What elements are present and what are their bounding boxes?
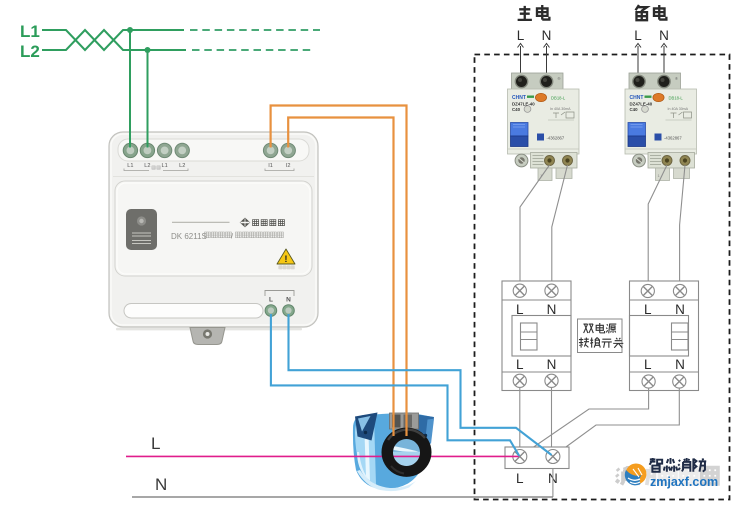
svg-text:N: N [547, 302, 557, 317]
svg-text:!: ! [284, 254, 287, 265]
svg-text:L1: L1 [20, 22, 40, 41]
svg-text:N: N [286, 297, 291, 304]
svg-text:L1: L1 [161, 163, 167, 169]
svg-text:L1: L1 [127, 163, 133, 169]
svg-text:DB18-L: DB18-L [551, 96, 566, 101]
svg-text:N: N [547, 357, 557, 372]
svg-text:CHNT: CHNT [512, 95, 526, 101]
svg-text:L: L [516, 471, 524, 486]
svg-text:L2: L2 [20, 42, 40, 61]
svg-text:-4362867: -4362867 [547, 136, 565, 141]
svg-text:N: N [542, 28, 552, 43]
svg-text:L: L [516, 302, 524, 317]
svg-text:L2: L2 [144, 163, 150, 169]
svg-text:L2: L2 [179, 163, 185, 169]
svg-text:I1: I1 [268, 163, 273, 169]
svg-text:L: L [644, 357, 652, 372]
svg-text:L: L [644, 302, 652, 317]
svg-text:N: N [659, 28, 669, 43]
svg-text:DK 6211S: DK 6211S [171, 232, 207, 241]
svg-text:DZ47LE-40: DZ47LE-40 [512, 102, 535, 107]
svg-text:L: L [269, 297, 273, 304]
svg-text:L: L [517, 28, 525, 43]
svg-text:I2: I2 [286, 163, 291, 169]
svg-text:C40: C40 [512, 107, 521, 112]
svg-text:In 40A 30mA: In 40A 30mA [550, 107, 571, 111]
svg-text:®: ® [558, 76, 561, 81]
svg-text:N: N [675, 302, 685, 317]
svg-text:N: N [675, 357, 685, 372]
svg-text:N: N [155, 475, 167, 494]
svg-text:L: L [634, 28, 642, 43]
svg-text:zmjaxf.com: zmjaxf.com [650, 475, 718, 489]
svg-text:L: L [151, 434, 160, 453]
svg-text:L: L [516, 357, 524, 372]
